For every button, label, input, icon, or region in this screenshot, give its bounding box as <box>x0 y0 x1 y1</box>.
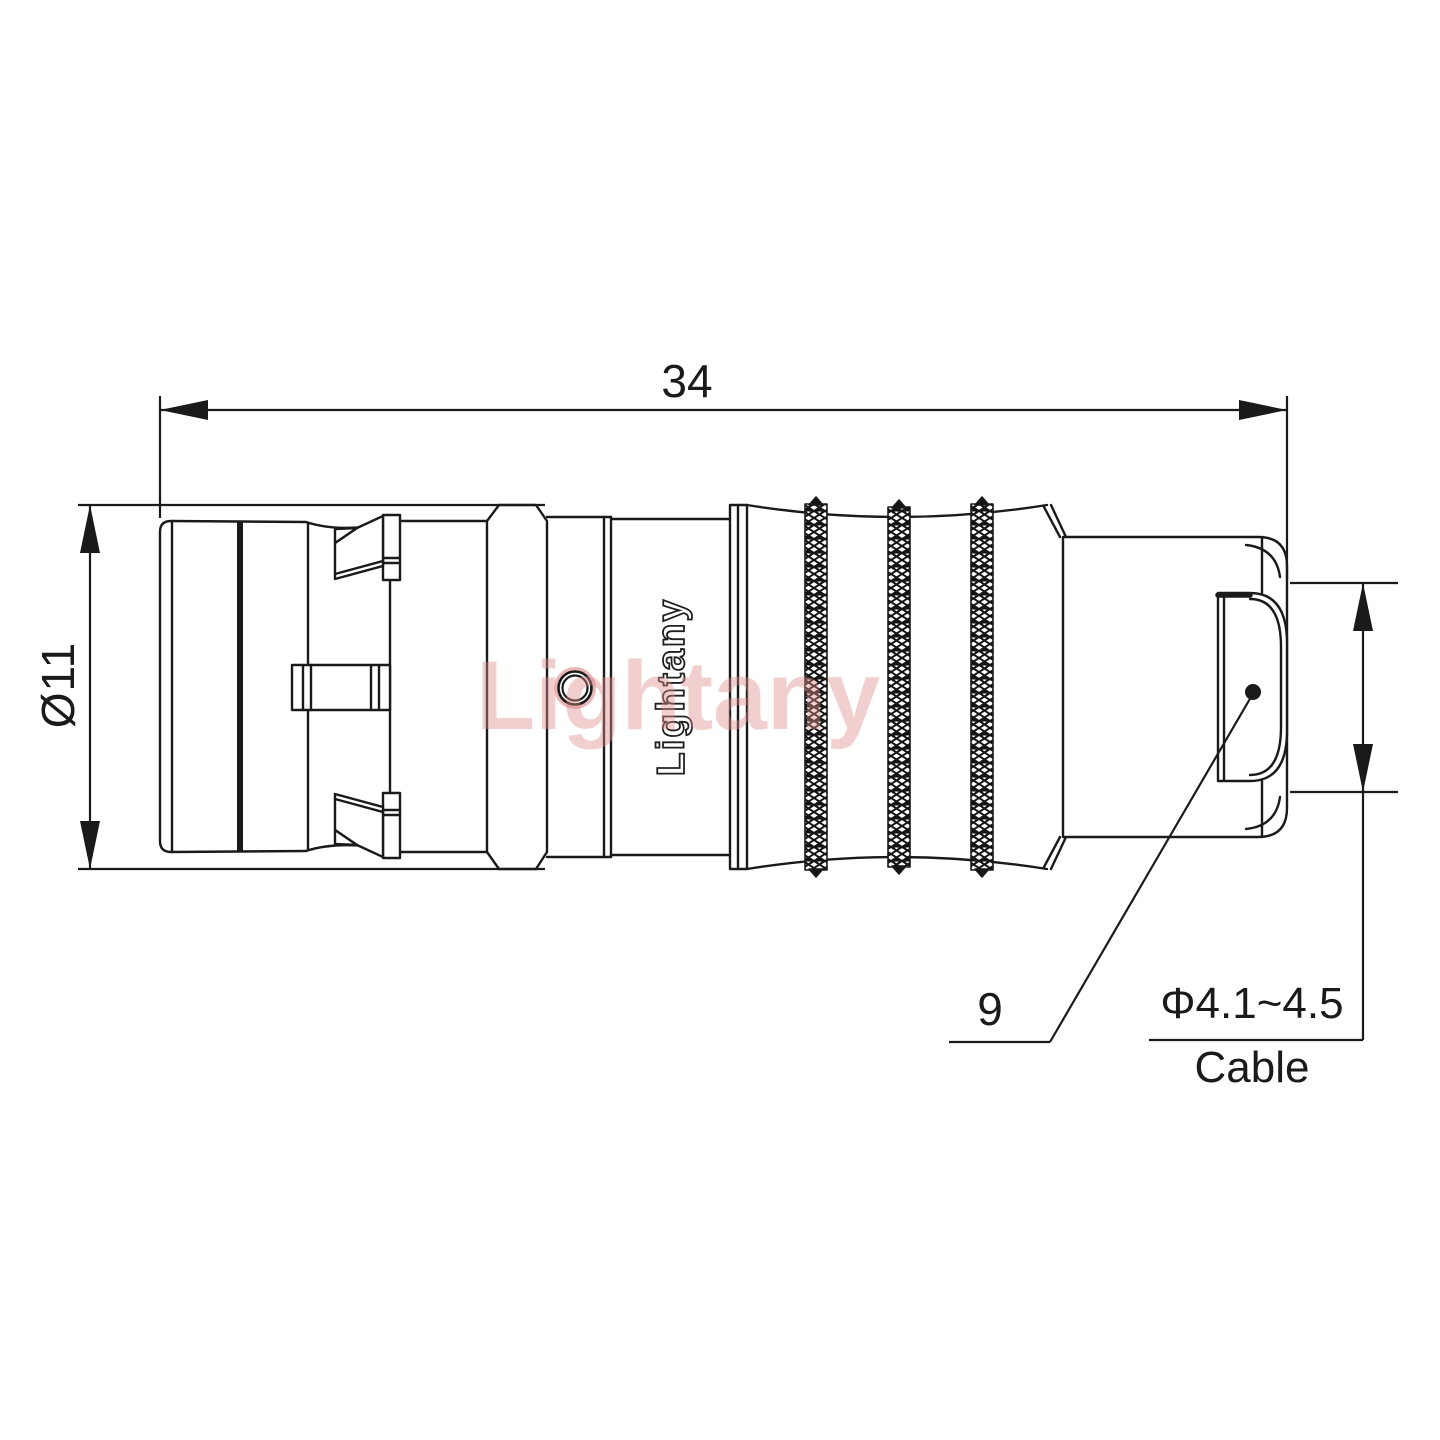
center-pin-block <box>292 665 390 710</box>
latch-end-slab <box>383 515 400 580</box>
cable-word-label: Cable <box>1132 1046 1372 1090</box>
vent-hole-section <box>547 517 611 857</box>
knurl-band-1 <box>805 504 827 870</box>
body-logo-text: Lightany <box>649 572 695 802</box>
knurl-band-2 <box>888 507 910 867</box>
connector-body <box>160 497 1287 877</box>
cable-hole-dot <box>1245 684 1261 700</box>
knurl-bands <box>805 497 993 877</box>
front-divider-thick-line <box>237 521 243 852</box>
cable-bushing <box>1218 593 1287 781</box>
arrowhead-down <box>1353 744 1373 792</box>
arrowhead-left <box>160 400 208 420</box>
arrowhead-right <box>1239 400 1287 420</box>
vent-hole-inner <box>563 676 588 701</box>
rear-section-label: 9 <box>940 986 1040 1032</box>
arrowhead-up <box>1353 583 1373 631</box>
collar <box>487 505 547 869</box>
dim-length-label: 34 <box>617 358 757 404</box>
cable-diameter-label: Φ4.1~4.5 <box>1132 982 1372 1026</box>
arrowhead-down <box>80 821 100 869</box>
latch-key-bottom <box>335 793 400 858</box>
drawing-canvas: 34 Ø11 9 Φ4.1~4.5 Cable Lightany Lightan… <box>0 0 1440 1440</box>
dim-diameter-label: Ø11 <box>35 605 81 765</box>
knurl-band-3 <box>971 504 993 870</box>
connector-drawing <box>0 0 1440 1440</box>
step-ring <box>730 505 747 869</box>
arrowhead-up <box>80 505 100 553</box>
latch-key-top <box>335 515 400 580</box>
